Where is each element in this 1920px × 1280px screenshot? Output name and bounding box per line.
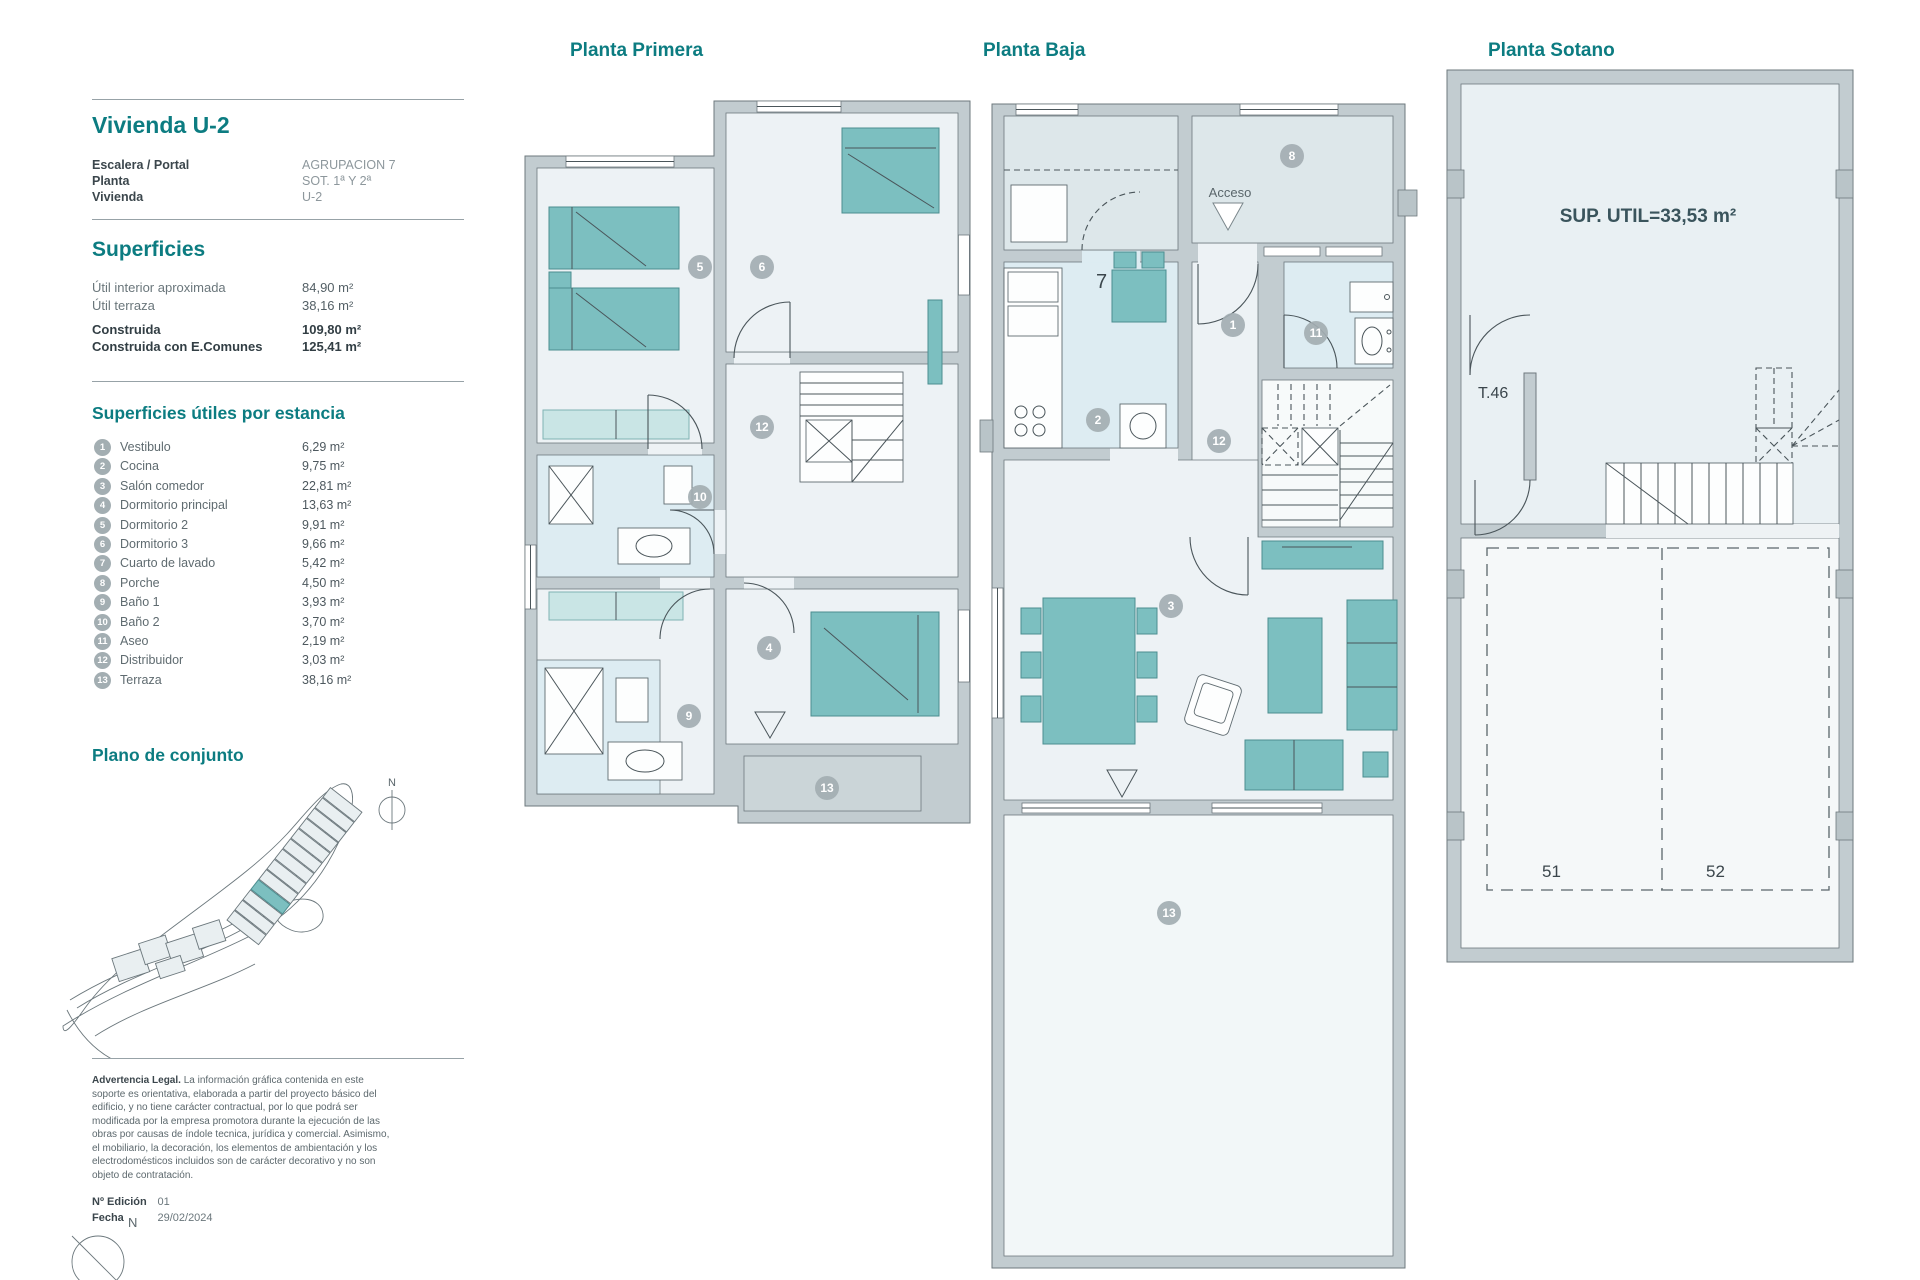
side-table (1363, 752, 1388, 777)
twin-bed (549, 207, 679, 269)
estancia-label: Porche (120, 576, 160, 590)
estancia-label: Baño 1 (120, 595, 160, 609)
room-number-badge: 6 (94, 536, 111, 553)
estancia-row: 8Porche4,50 m² (92, 574, 464, 593)
double-bed (842, 128, 939, 213)
legal-lead: Advertencia Legal. (92, 1075, 181, 1086)
title-planta-primera: Planta Primera (570, 40, 703, 62)
superficie-row-bold: Construida 109,80 m² (92, 322, 464, 337)
stair-opening (1606, 524, 1839, 538)
estancia-row: 5Dormitorio 29,91 m² (92, 516, 464, 535)
room-number-badge: 4 (94, 497, 111, 514)
room-marker-9: 9 (686, 709, 693, 723)
superficie-value: 125,41 m² (302, 339, 361, 354)
estancia-row: 6Dormitorio 39,66 m² (92, 535, 464, 554)
superficie-row: Útil terraza 38,16 m² (92, 298, 464, 313)
toilet (616, 678, 648, 722)
estancia-label: Vestibulo (120, 440, 171, 454)
site-unit-strip (227, 788, 362, 945)
coffee-table (1268, 618, 1322, 713)
room-marker-12: 12 (755, 420, 769, 434)
estancia-value: 2,19 m² (302, 634, 344, 648)
superficie-label: Útil terraza (92, 298, 155, 313)
estancia-value: 3,70 m² (302, 615, 344, 629)
fridge (1008, 272, 1058, 302)
info-label: Planta (92, 174, 130, 188)
acceso-label: Acceso (1209, 185, 1252, 200)
chair (1137, 608, 1157, 634)
estancia-value: 3,03 m² (302, 653, 344, 667)
estancia-row: 4Dormitorio principal13,63 m² (92, 496, 464, 515)
estancias-heading: Superficies útiles por estancia (92, 403, 345, 424)
laundry-number-label: 7 (1096, 271, 1107, 293)
estancia-label: Aseo (120, 634, 149, 648)
wall-pilaster (980, 420, 993, 452)
estancia-value: 13,63 m² (302, 498, 351, 512)
room-sotano-util (1461, 84, 1839, 524)
room-number-badge: 12 (94, 652, 111, 669)
dining-table (1043, 598, 1135, 744)
room-marker-5: 5 (697, 260, 704, 274)
parking-space-51: 51 (1542, 862, 1561, 881)
estancia-row: 3Salón comedor22,81 m² (92, 477, 464, 496)
room-number-badge: 7 (94, 555, 111, 572)
info-value: SOT. 1ª Y 2ª (302, 174, 371, 188)
double-bed (811, 612, 939, 716)
sup-util-label: SUP. UTIL=33,53 m² (1560, 206, 1737, 227)
room-number-badge: 1 (94, 439, 111, 456)
legal-text: La información gráfica contenida en este… (92, 1075, 389, 1181)
shelf (928, 300, 942, 384)
vanity (1355, 318, 1393, 364)
room-marker-1: 1 (1230, 318, 1237, 332)
estancia-row: 2Cocina9,75 m² (92, 457, 464, 476)
twin-bed (549, 288, 679, 350)
room-marker-6: 6 (759, 260, 766, 274)
estancia-value: 38,16 m² (302, 673, 351, 687)
room-terraza (1004, 815, 1393, 1256)
room-garage (1461, 538, 1839, 948)
room-marker-10: 10 (693, 490, 707, 504)
estancia-row: 7Cuarto de lavado5,42 m² (92, 554, 464, 573)
chair (1142, 252, 1164, 268)
superficie-value: 84,90 m² (302, 280, 353, 295)
tv-sideboard (1262, 541, 1383, 569)
room-marker-13: 13 (1162, 906, 1176, 920)
site-plan: N (55, 768, 415, 1058)
estancia-label: Distribuidor (120, 653, 183, 667)
breakfast-table (1112, 270, 1166, 322)
toilet (664, 466, 692, 504)
estancia-label: Terraza (120, 673, 162, 687)
superficie-value: 109,80 m² (302, 322, 361, 337)
parking-space-52: 52 (1706, 862, 1725, 881)
info-label: Escalera / Portal (92, 158, 189, 172)
room-marker-2: 2 (1095, 413, 1102, 427)
estancia-row: 12Distribuidor3,03 m² (92, 651, 464, 670)
superficie-label: Construida con E.Comunes (92, 339, 262, 354)
estancia-label: Dormitorio 2 (120, 518, 188, 532)
chair (1021, 608, 1041, 634)
aseo-fixtures (1350, 282, 1393, 364)
vanity (618, 528, 690, 564)
north-label: N (388, 777, 396, 789)
estancia-row: 10Baño 23,70 m² (92, 613, 464, 632)
info-row-planta: Planta SOT. 1ª Y 2ª (92, 174, 464, 188)
chair (1137, 696, 1157, 722)
appliance (1008, 306, 1058, 336)
planta-sotano-plan: SUP. UTIL=33,53 m² T.46 51 52 (1437, 62, 1867, 977)
info-value: U-2 (302, 190, 322, 204)
title-planta-baja: Planta Baja (983, 40, 1085, 62)
estancia-row: 13Terraza38,16 m² (92, 671, 464, 690)
room-marker-12: 12 (1212, 434, 1226, 448)
estancia-label: Dormitorio principal (120, 498, 228, 512)
chair (1021, 696, 1041, 722)
legal-disclaimer: Advertencia Legal. La información gráfic… (92, 1074, 394, 1182)
estancia-value: 4,50 m² (302, 576, 344, 590)
site-compass: N (379, 777, 405, 830)
estancia-row: 11Aseo2,19 m² (92, 632, 464, 651)
estancia-value: 5,42 m² (302, 556, 344, 570)
room-marker-4: 4 (766, 641, 773, 655)
superficies-heading: Superficies (92, 238, 205, 262)
superficie-row: Útil interior aproximada 84,90 m² (92, 280, 464, 295)
trastero-label: T.46 (1478, 385, 1508, 402)
chair (1114, 252, 1136, 268)
estancia-row: 1Vestibulo6,29 m² (92, 438, 464, 457)
room-number-badge: 9 (94, 594, 111, 611)
estancias-list: 1Vestibulo6,29 m² 2Cocina9,75 m² 3Salón … (92, 438, 464, 690)
divider (92, 99, 464, 100)
plano-conjunto-heading: Plano de conjunto (92, 745, 244, 766)
info-value: AGRUPACION 7 (302, 158, 396, 172)
superficie-value: 38,16 m² (302, 298, 353, 313)
sofa (1347, 600, 1397, 730)
title-planta-sotano: Planta Sotano (1488, 40, 1615, 62)
room-porche (1192, 116, 1393, 243)
room-number-badge: 11 (94, 633, 111, 650)
planta-baja-plan: Acceso (975, 95, 1425, 1280)
estancia-value: 3,93 m² (302, 595, 344, 609)
estancia-value: 22,81 m² (302, 479, 351, 493)
room-number-badge: 3 (94, 478, 111, 495)
toilet (1350, 282, 1393, 312)
info-panel: Vivienda U-2 Escalera / Portal AGRUPACIO… (92, 0, 464, 1280)
chair (1021, 652, 1041, 678)
north-label: N (128, 1215, 137, 1230)
room-marker-13: 13 (820, 781, 834, 795)
info-row-vivienda: Vivienda U-2 (92, 190, 464, 204)
superficie-label: Construida (92, 322, 161, 337)
planta-primera-plan: 5 6 12 10 4 9 13 (505, 90, 985, 830)
room-marker-8: 8 (1289, 149, 1296, 163)
room-number-badge: 10 (94, 614, 111, 631)
sink-counter (1120, 404, 1166, 448)
estancia-label: Dormitorio 3 (120, 537, 188, 551)
estancia-value: 9,66 m² (302, 537, 344, 551)
estancia-value: 9,91 m² (302, 518, 344, 532)
chair (1137, 652, 1157, 678)
info-label: Vivienda (92, 190, 143, 204)
estancia-row: 9Baño 13,93 m² (92, 593, 464, 612)
divider (92, 381, 464, 382)
room-number-badge: 13 (94, 672, 111, 689)
estancia-label: Baño 2 (120, 615, 160, 629)
divider (92, 1058, 464, 1059)
room-marker-11: 11 (1310, 326, 1323, 340)
floorplan-sheet: Vivienda U-2 Escalera / Portal AGRUPACIO… (0, 0, 1920, 1280)
superficie-row-bold: Construida con E.Comunes 125,41 m² (92, 339, 464, 354)
estancia-label: Salón comedor (120, 479, 204, 493)
room-marker-3: 3 (1168, 599, 1175, 613)
staircase (800, 372, 903, 482)
info-row-escalera: Escalera / Portal AGRUPACION 7 (92, 158, 464, 172)
room-number-badge: 2 (94, 458, 111, 475)
closet (1011, 185, 1067, 242)
unit-title: Vivienda U-2 (92, 112, 230, 139)
estancia-label: Cocina (120, 459, 159, 473)
room-number-badge: 8 (94, 575, 111, 592)
estancia-label: Cuarto de lavado (120, 556, 215, 570)
divider (92, 219, 464, 220)
vanity (608, 742, 682, 780)
superficie-label: Útil interior aproximada (92, 280, 226, 295)
bottom-compass: N (60, 1205, 170, 1280)
wall-pilaster (1398, 190, 1417, 216)
room-number-badge: 5 (94, 517, 111, 534)
estancia-value: 6,29 m² (302, 440, 344, 454)
estancia-value: 9,75 m² (302, 459, 344, 473)
